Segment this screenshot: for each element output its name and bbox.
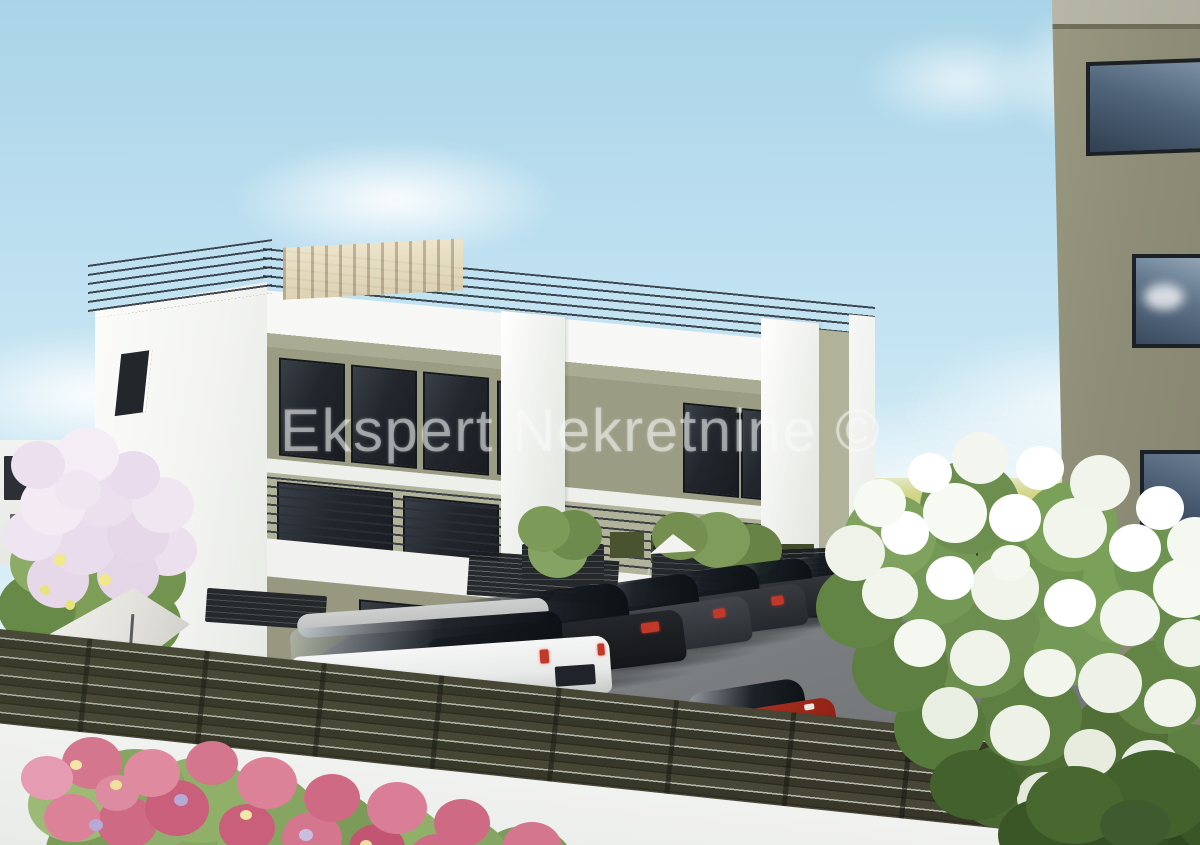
pink-flower-bed [95, 775, 139, 811]
taillight [877, 576, 888, 585]
hedge-row [610, 532, 644, 558]
taillight [597, 643, 605, 655]
license-plate [555, 664, 596, 687]
roof-shadow-line [1038, 24, 1200, 29]
rooftop-pergola [283, 238, 463, 299]
tree-foliage [50, 560, 104, 606]
taillight [771, 595, 784, 606]
window [4, 456, 30, 500]
window [1132, 254, 1200, 348]
watermark-text: Ekspert Nekretnine © [280, 396, 980, 465]
dark-green-bush [1100, 800, 1170, 845]
taillight [539, 649, 549, 664]
bush-foliage [980, 600, 1040, 654]
flower-accents [70, 760, 82, 770]
window [1086, 58, 1200, 156]
gable-window [109, 470, 151, 539]
cloud-reflection [1144, 284, 1184, 310]
cloud [860, 30, 1060, 130]
window [1140, 450, 1200, 552]
taillight [713, 608, 726, 619]
window [10, 514, 80, 536]
taillight [823, 584, 834, 593]
white-flower-bush [990, 545, 1030, 581]
rendering-canvas: Ekspert Nekretnine © [0, 0, 1200, 845]
roof-slab [1038, 0, 1200, 24]
blossom-tree [55, 470, 101, 510]
planter-bush [518, 506, 570, 552]
pergola-beams [283, 238, 463, 299]
background-gray-car [892, 530, 976, 560]
tree-fruits [40, 585, 50, 595]
